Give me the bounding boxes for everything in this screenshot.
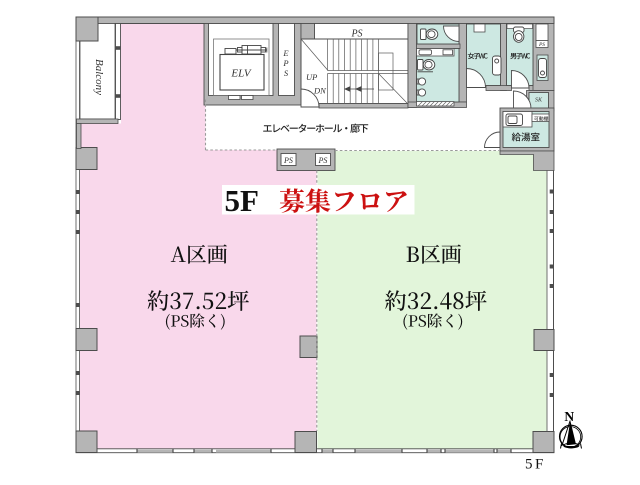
svg-text:5F: 5F (225, 183, 259, 218)
svg-text:UP: UP (306, 72, 317, 82)
svg-text:PS: PS (318, 156, 328, 165)
svg-text:ELV: ELV (230, 68, 251, 80)
svg-text:PS: PS (350, 29, 362, 40)
svg-text:Balcony: Balcony (93, 59, 105, 95)
svg-text:5F: 5F (525, 457, 546, 473)
svg-text:DN: DN (313, 86, 327, 96)
svg-text:P: P (282, 58, 288, 68)
svg-text:PS: PS (538, 42, 545, 48)
svg-text:PS: PS (283, 156, 293, 165)
svg-text:SK: SK (535, 98, 543, 104)
svg-text:E: E (282, 48, 289, 58)
